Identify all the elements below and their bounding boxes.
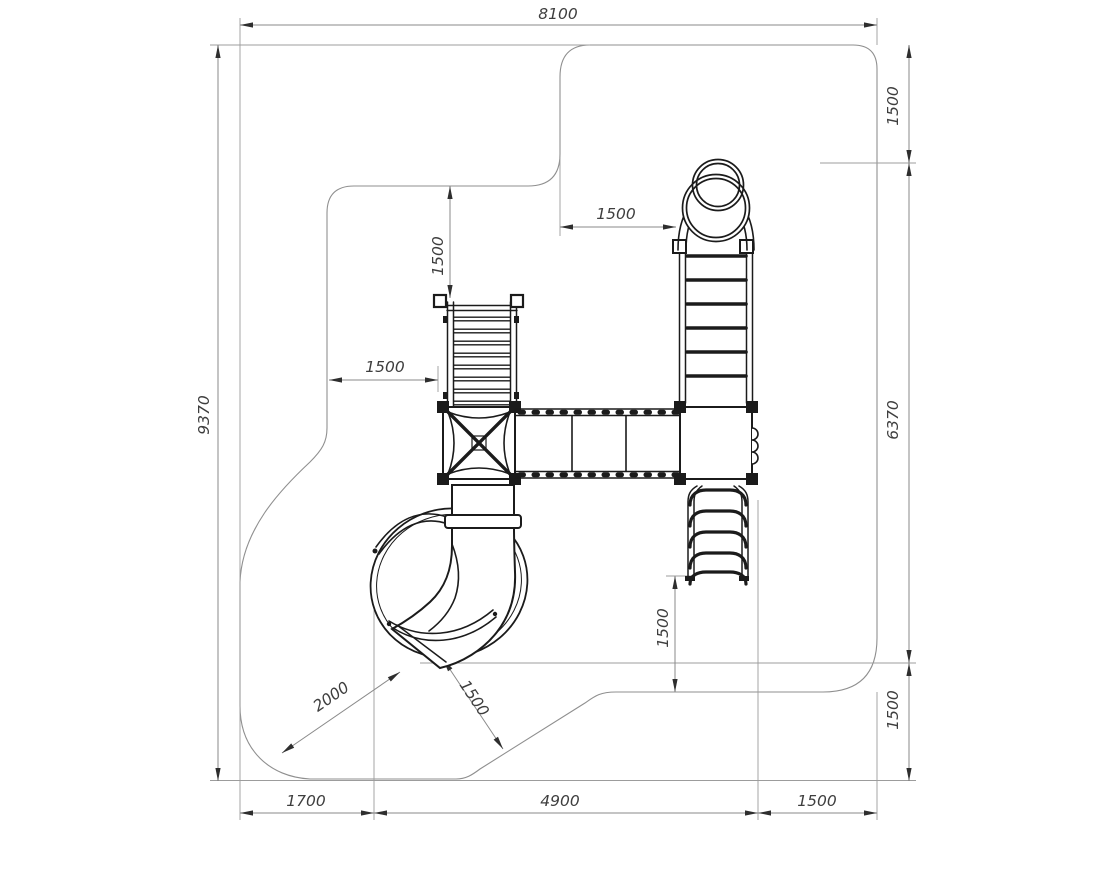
dim-bottom-left-label: 1700 bbox=[286, 792, 326, 810]
dim-stairs-top-label: 1500 bbox=[429, 236, 447, 276]
dim-slide-exit-label: 2000 bbox=[310, 678, 353, 715]
drawing-page: 8100 9370 1500 6370 1500 1700 4900 1500 bbox=[0, 0, 1110, 879]
spiral-tube-slide bbox=[349, 485, 548, 680]
slide-tube-collar bbox=[445, 515, 521, 528]
plan-drawing: 8100 9370 1500 6370 1500 1700 4900 1500 bbox=[0, 0, 1110, 879]
stair-handle-left bbox=[434, 295, 446, 307]
dim-ladder-top-label: 1500 bbox=[596, 205, 636, 223]
dim-slide-exit-clearance: 2000 bbox=[282, 672, 400, 753]
bridge bbox=[515, 409, 684, 478]
dim-right-top-label: 1500 bbox=[884, 86, 902, 126]
tower-post bbox=[437, 401, 449, 413]
dim-slide-side-clearance: 1500 bbox=[443, 659, 503, 749]
overhead-rings bbox=[683, 160, 750, 242]
dim-bottom-chain: 1700 4900 1500 bbox=[240, 792, 877, 816]
dim-bottom-middle-label: 4900 bbox=[540, 792, 580, 810]
tower-post bbox=[746, 473, 758, 485]
safety-zone-outline bbox=[240, 45, 877, 779]
ring-large-inner bbox=[687, 179, 746, 238]
dim-stairs-side-label: 1500 bbox=[365, 358, 405, 376]
arc-rung-climber bbox=[685, 486, 749, 584]
grip-bumps bbox=[752, 428, 758, 464]
main-tower-platform bbox=[674, 401, 758, 485]
dim-stairs-side-clearance: 1500 bbox=[329, 358, 438, 383]
dim-right-bottom-label: 1500 bbox=[884, 690, 902, 730]
dim-bottom-right-label: 1500 bbox=[797, 792, 837, 810]
dim-ladder-top-clearance: 1500 bbox=[560, 205, 676, 230]
dim-overall-height: 9370 bbox=[195, 45, 221, 781]
tower-post bbox=[674, 473, 686, 485]
dim-right-chain: 1500 6370 1500 bbox=[884, 45, 912, 781]
dim-ladder-bottom-label: 1500 bbox=[654, 608, 672, 648]
dim-overall-width-label: 8100 bbox=[538, 5, 578, 23]
dim-ladder-bottom-clearance: 1500 bbox=[654, 576, 678, 692]
tower-post bbox=[437, 473, 449, 485]
dim-slide-side-label: 1500 bbox=[456, 677, 493, 720]
slide-tower-platform bbox=[437, 401, 521, 485]
vertical-ladder bbox=[673, 240, 753, 403]
dim-right-middle-label: 6370 bbox=[884, 400, 902, 440]
dim-overall-height-label: 9370 bbox=[195, 395, 213, 435]
dim-overall-width: 8100 bbox=[240, 5, 877, 28]
staircase bbox=[434, 295, 523, 408]
dim-stairs-top-clearance: 1500 bbox=[429, 186, 453, 298]
stair-handle-right bbox=[511, 295, 523, 307]
